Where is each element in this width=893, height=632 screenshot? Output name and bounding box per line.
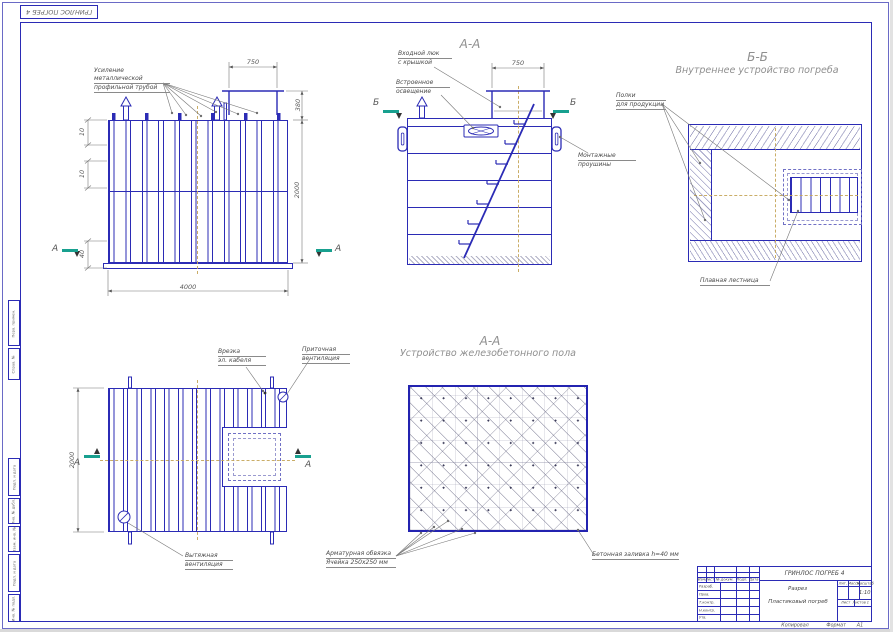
supply-vent-label: Приточная вентиляция [302,346,350,364]
cable-label: Врезка эл. кабеля [218,348,266,366]
tb-line [736,567,737,621]
section-aa-title: А-А [440,37,500,51]
dim-front-left-bottom: 40 [78,246,86,262]
dim-front-body-width: 4000 [168,283,208,291]
title-block: Изм. Лист № докум. Подп. Дата Разраб. Пр… [697,566,872,622]
plan-view-lines [73,359,310,556]
dim-front-body-height: 2000 [293,176,301,204]
exhaust-vent-label: Вытяжная вентиляция [185,552,233,570]
format-label: Формат [826,623,845,629]
tb-lit-label: Лит. [837,580,848,586]
section-letter-a-front-left: А [52,244,58,254]
reinforcement-label: Усиление металлической профильной трубой [94,67,170,93]
shelves-label: Полки для продукции [616,92,666,110]
concrete-label: Бетонная заливка h=40 мм [592,551,702,560]
tb-col-podp: Подп. [736,577,749,582]
hatch-label: Входной люк с крышкой [398,50,452,67]
section-b-bar-left [383,110,399,113]
section-bb-title: Б-Б [700,50,815,64]
tb-doc-title: ГРИНЛОС ПОГРЕБ 4 [759,567,871,580]
dim-aa-chimney-width: 750 [498,59,538,67]
drawing-sheet: ГРИНЛОС ПОГРЕБ 4 Перв. примен. Справ. № … [0,0,893,632]
tb-sheets-value: 1 [864,599,871,606]
tb-doc-name: Пластиковый погреб [759,595,837,607]
section-letter-b-right: Б [570,98,576,108]
tb-line [720,582,721,621]
dim-front-left-top: 10 [78,124,86,140]
tb-line [698,572,759,573]
floor-view-lines [396,520,594,556]
section-a-bar-right [316,249,332,252]
tb-row-nkontr: Н.контр. [699,606,720,614]
section-b-bar-right [553,110,569,113]
tb-doc-type: Разрез [759,582,837,594]
format-value: А1 [857,623,863,629]
copied-label: Копировал [767,623,823,629]
plan-section-letter-right: А [305,460,311,470]
plan-section-a-bar-left [84,455,100,458]
light-label: Встроенное освещение [396,79,450,96]
dim-front-chimney-width: 750 [235,58,271,66]
front-view-lines [74,62,322,296]
lugs-label: Монтажные проушины [578,152,636,169]
floor-view-subtitle: Устройство железобетонного пола [388,348,588,359]
rebar-label: Арматурная обвязка Ячейка 250х250 мм [326,550,396,568]
tb-sheet-label: Лист [837,599,854,606]
section-bb-lines [662,104,799,281]
tb-col-data: Дата [749,577,759,582]
tb-line [749,567,750,621]
plan-section-a-bar-right [295,455,311,458]
section-a-bar-left [62,249,78,252]
section-bb-subtitle: Внутреннее устройство погреба [652,65,862,76]
tb-row-razrab: Разраб. [699,582,720,590]
dim-plan-body-depth: 2000 [68,446,76,474]
dim-front-chimney-height: 380 [294,93,302,117]
floor-view-title: А-А [455,334,525,348]
dim-front-left-mid: 10 [78,166,86,182]
tb-row-prov: Пров. [699,590,720,598]
section-letter-b-left: Б [373,98,379,108]
section-letter-a-front-right: А [335,244,341,254]
tb-row-tkontr: Т.контр. [699,598,720,606]
ladder-label: Плавная лестница [700,277,770,286]
tb-line [837,606,871,607]
tb-scale-value: 1:10 [859,586,871,599]
tb-row-utv: Утв. [699,614,720,621]
